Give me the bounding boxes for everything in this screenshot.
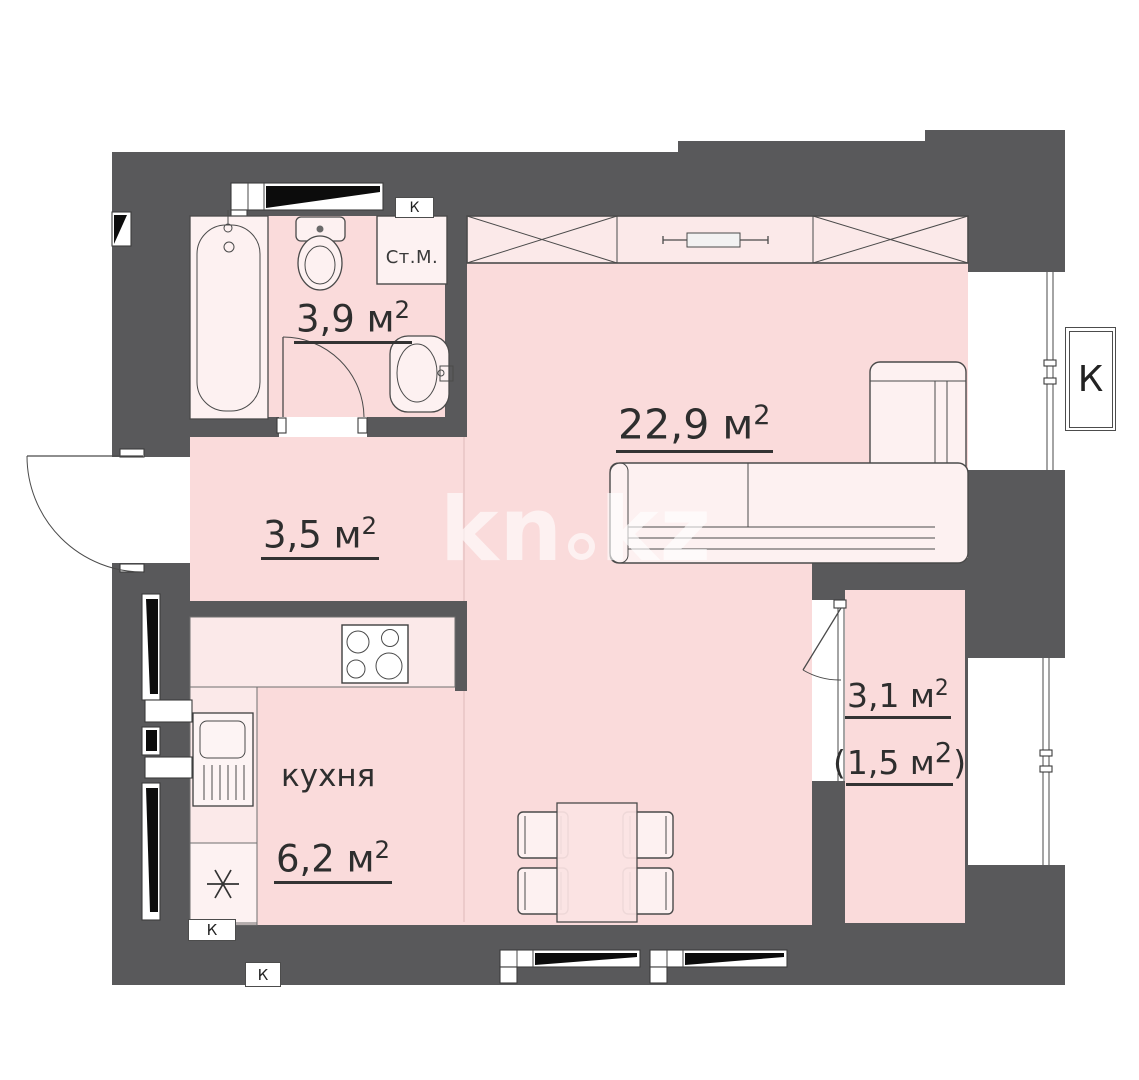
area-label-kitchen: 6,2 м2 [274, 838, 392, 884]
room-name-kitchen: кухня [281, 761, 375, 792]
area-label-living: 22,9 м2 [616, 402, 773, 453]
loggia-top [968, 272, 1065, 470]
vent-box-bottom: К [245, 962, 281, 987]
area-label-balcony-reduced: (1,5 м2) [833, 740, 966, 786]
loggia-bottom [968, 658, 1065, 865]
washing-machine-label: Ст.М. [377, 216, 447, 268]
vent-box-bathroom: К [395, 197, 434, 218]
entrance-opening [112, 457, 190, 563]
room-kitchen-ext [455, 690, 467, 925]
vent-box-right: К [1065, 327, 1116, 431]
wall-kitchen-side [455, 601, 467, 691]
wall-kitchen-top [190, 601, 467, 617]
bathroom-door-opening [279, 417, 367, 437]
area-label-bathroom: 3,9 м2 [294, 298, 412, 344]
floor-plan: 3,9 м2 22,9 м2 3,5 м2 кухня 6,2 м2 3,1 м… [0, 0, 1139, 1080]
watermark: knkz [440, 478, 712, 581]
room-living-lower [467, 558, 812, 925]
vent-box-kitchen: К [188, 919, 236, 941]
area-label-hallway: 3,5 м2 [261, 514, 379, 560]
watermark-dot-icon [568, 533, 595, 560]
area-label-balcony: 3,1 м2 [845, 678, 951, 719]
